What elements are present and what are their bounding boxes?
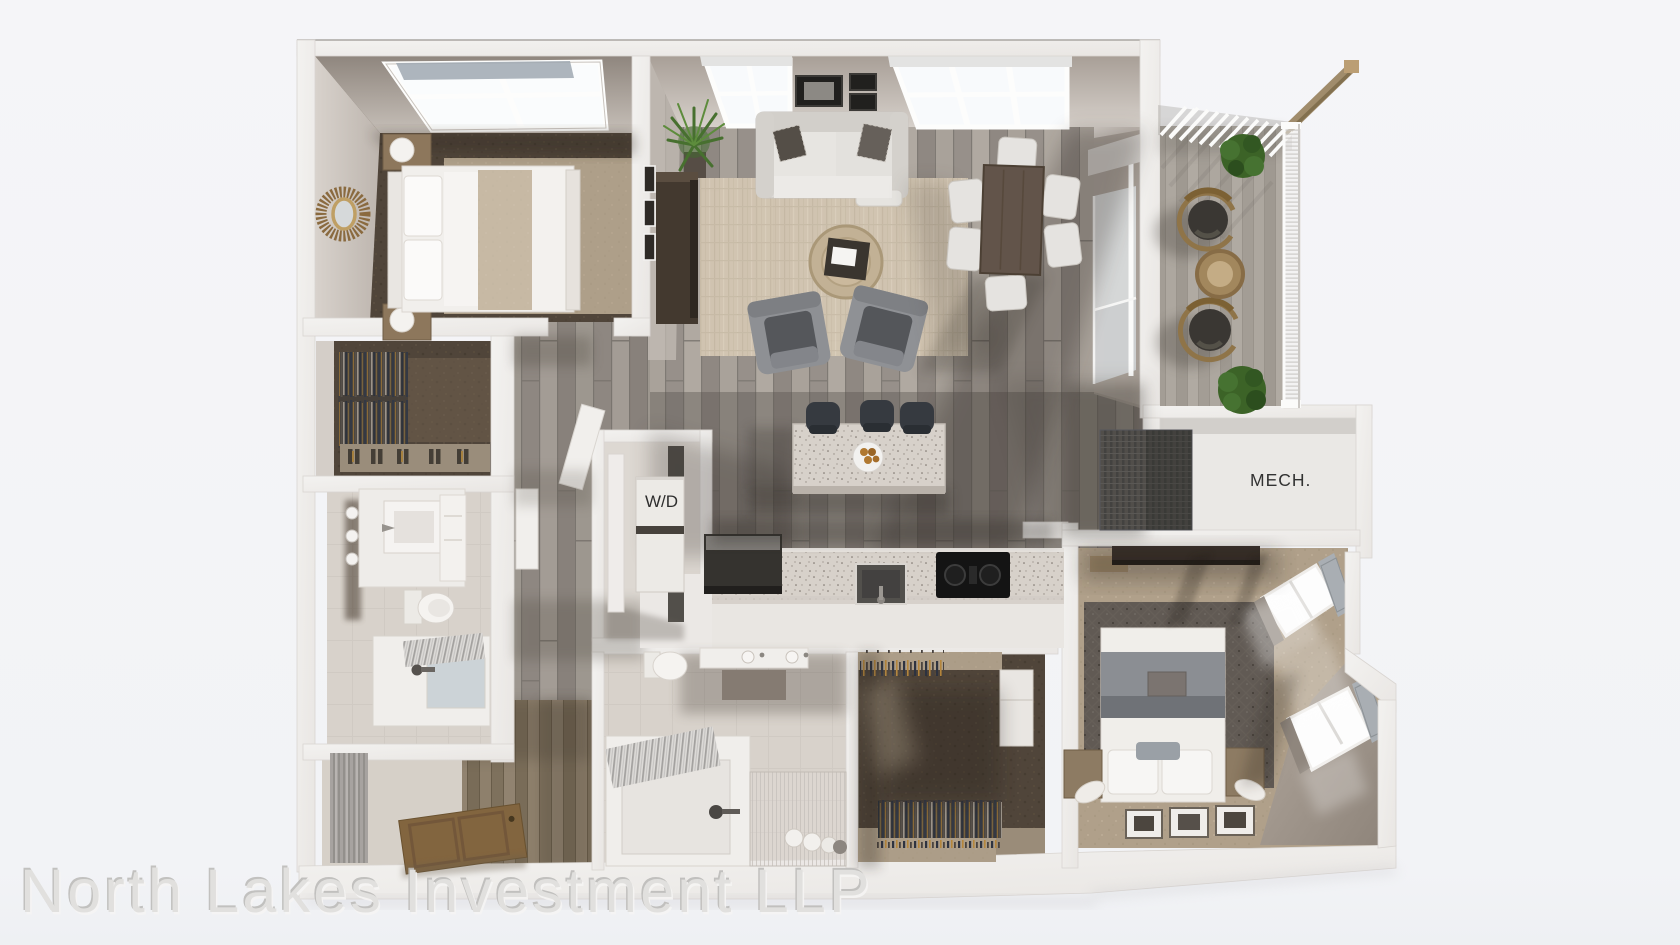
svg-text:North Lakes Investment LLP: North Lakes Investment LLP bbox=[20, 857, 873, 925]
svg-text:W/D: W/D bbox=[645, 492, 678, 511]
svg-text:MECH.: MECH. bbox=[1250, 470, 1311, 490]
